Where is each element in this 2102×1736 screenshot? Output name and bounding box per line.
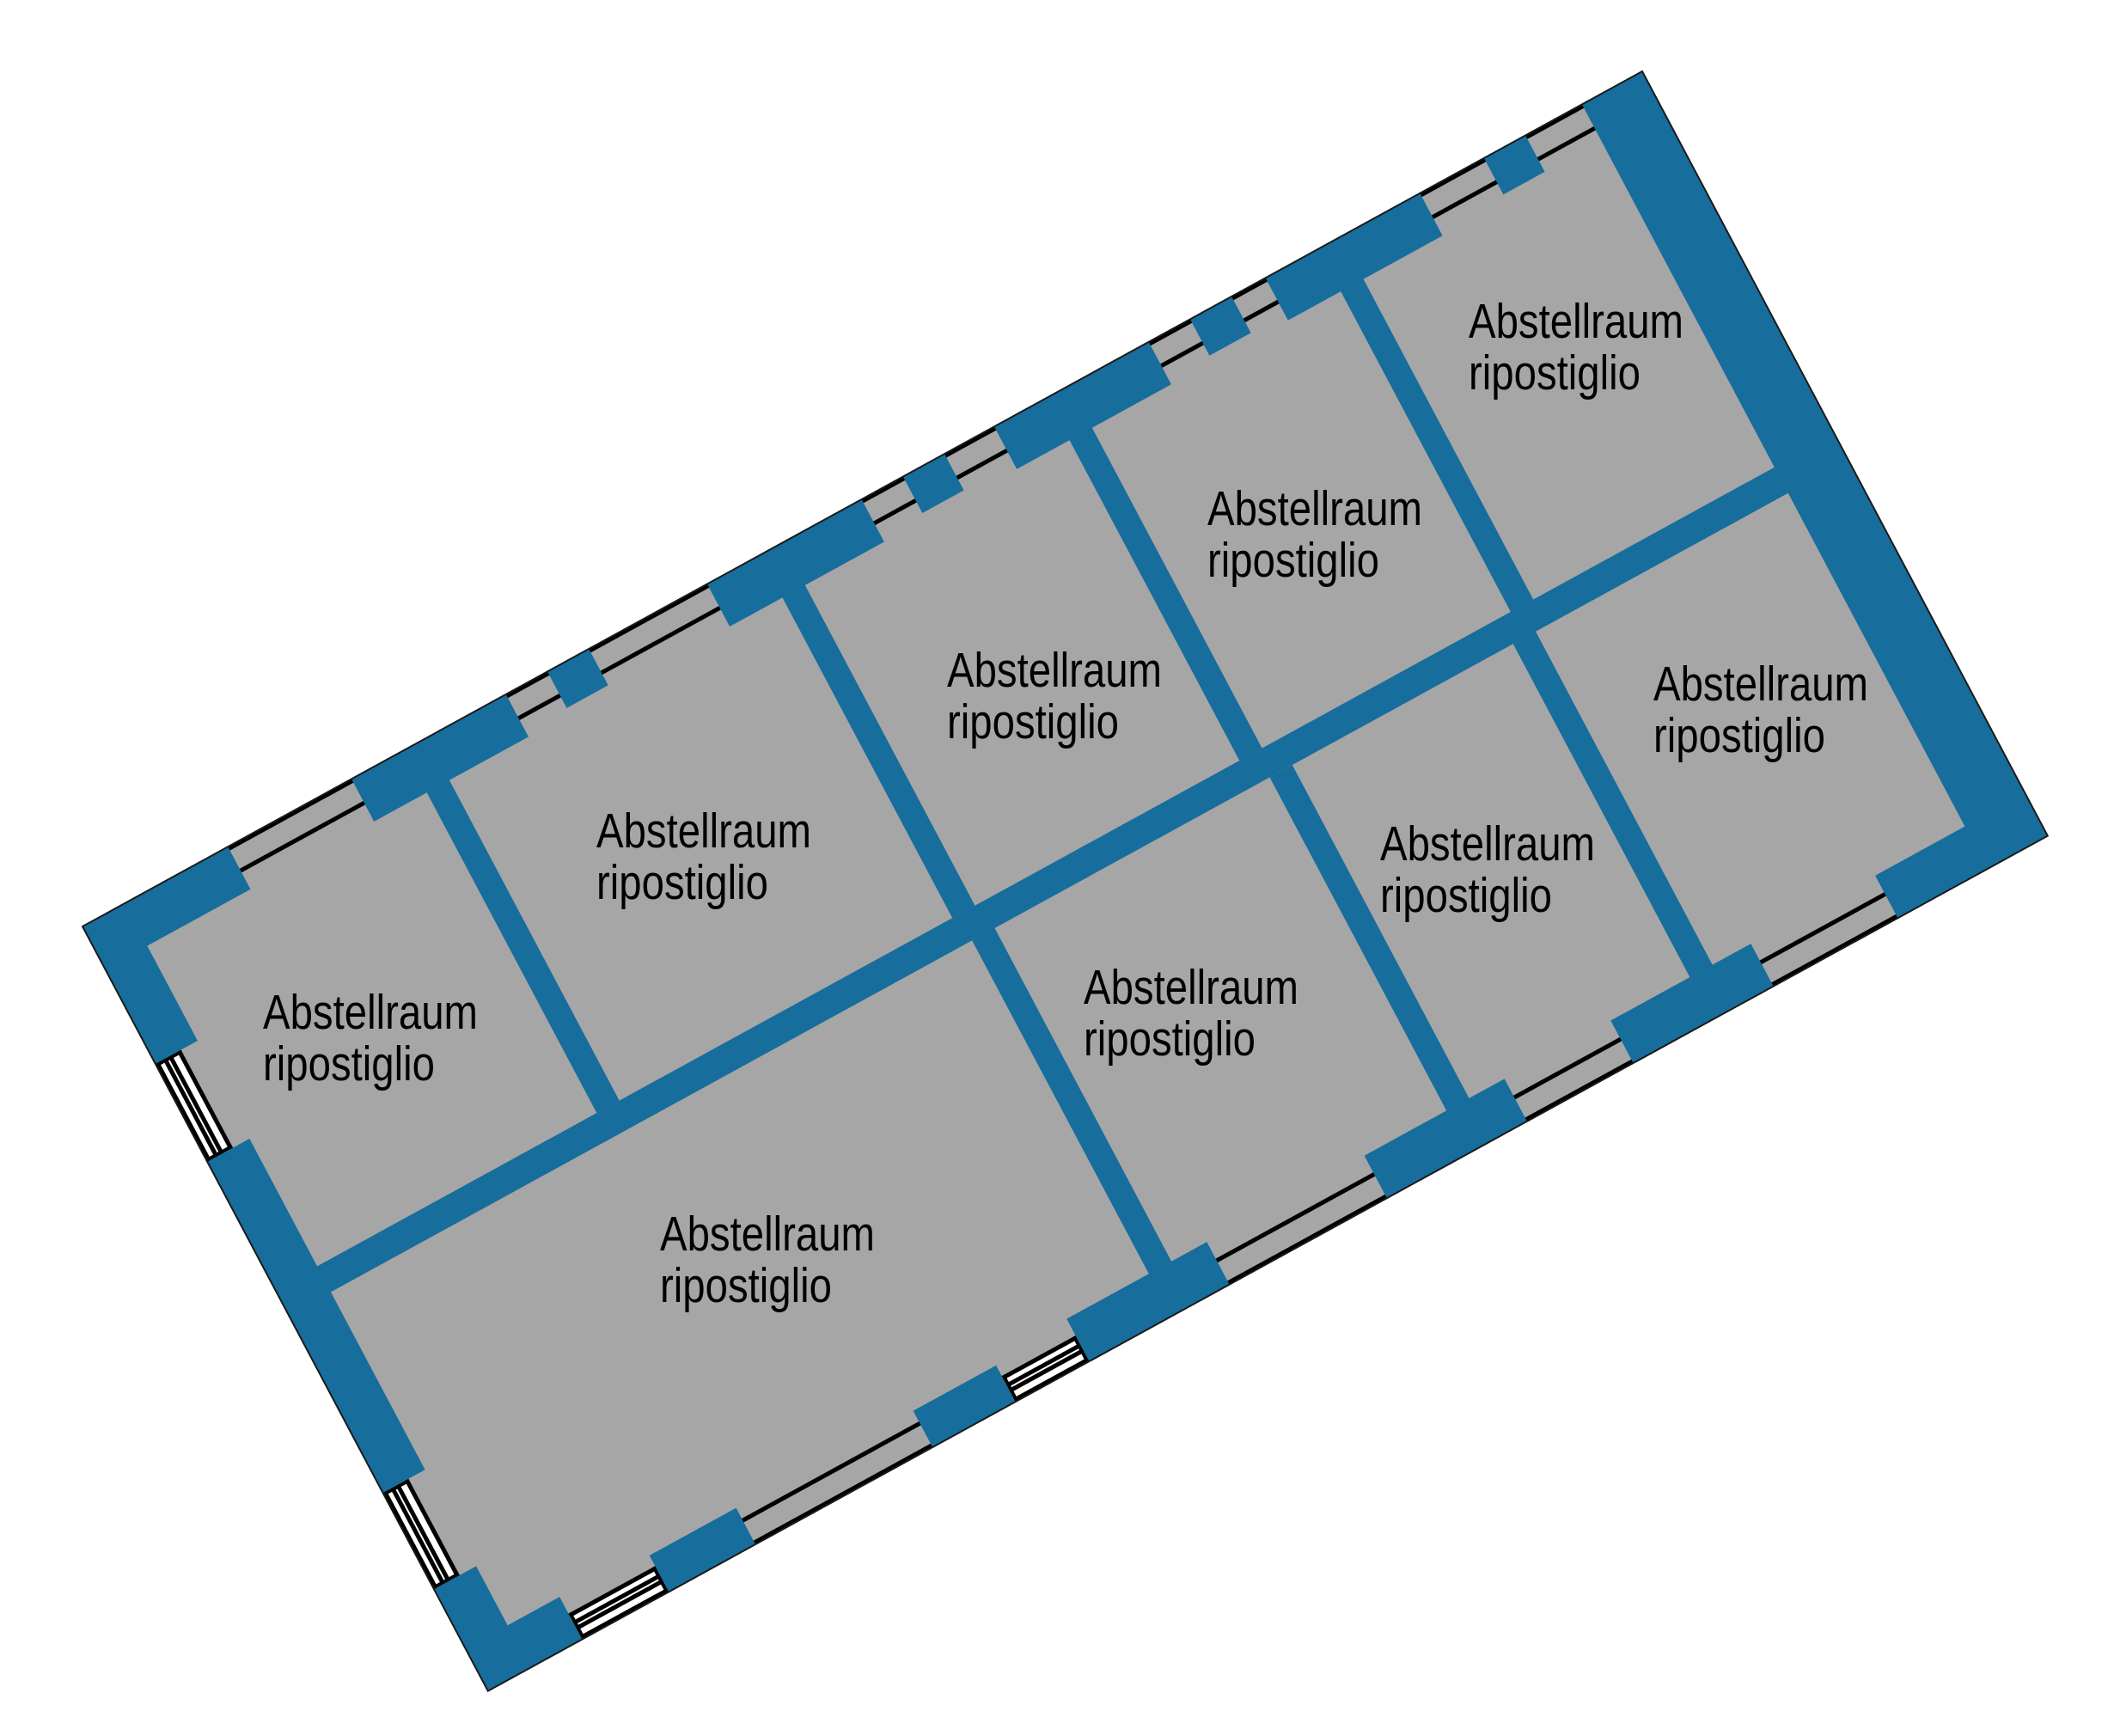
svg-text:Abstellraum: Abstellraum	[660, 1207, 875, 1262]
svg-text:ripostiglio: ripostiglio	[660, 1258, 832, 1313]
svg-text:ripostiglio: ripostiglio	[1653, 708, 1825, 763]
svg-text:Abstellraum: Abstellraum	[1469, 294, 1683, 349]
svg-text:ripostiglio: ripostiglio	[1380, 868, 1552, 923]
svg-text:Abstellraum: Abstellraum	[263, 985, 478, 1040]
svg-text:Abstellraum: Abstellraum	[1084, 960, 1298, 1015]
svg-text:ripostiglio: ripostiglio	[1207, 533, 1379, 588]
svg-text:Abstellraum: Abstellraum	[1380, 816, 1595, 871]
svg-text:ripostiglio: ripostiglio	[1084, 1012, 1256, 1067]
svg-text:ripostiglio: ripostiglio	[947, 694, 1119, 749]
svg-text:ripostiglio: ripostiglio	[263, 1036, 435, 1091]
svg-text:Abstellraum: Abstellraum	[1207, 481, 1422, 536]
svg-text:Abstellraum: Abstellraum	[596, 804, 811, 859]
svg-text:Abstellraum: Abstellraum	[947, 643, 1162, 698]
svg-text:ripostiglio: ripostiglio	[1469, 345, 1641, 400]
svg-text:Abstellraum: Abstellraum	[1653, 657, 1868, 712]
svg-text:ripostiglio: ripostiglio	[596, 855, 768, 910]
